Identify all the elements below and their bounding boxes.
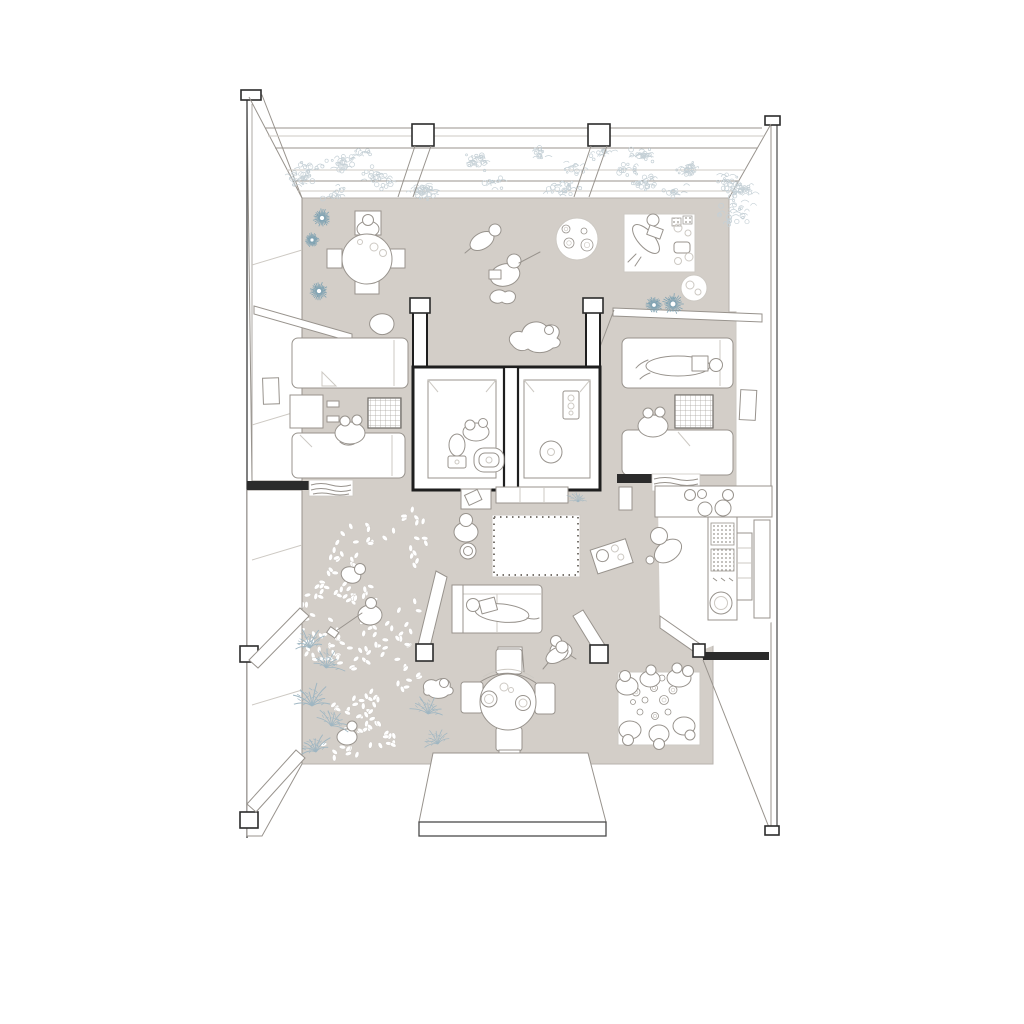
desk-item	[327, 416, 339, 422]
south-wall	[247, 481, 309, 490]
toy	[652, 713, 659, 720]
floor-plan-canvas	[0, 0, 1024, 1024]
bed	[622, 430, 733, 475]
mirror	[739, 390, 757, 421]
column-cap	[410, 298, 430, 313]
round-play-rug	[556, 218, 598, 260]
south-wall	[703, 652, 769, 660]
round-dining-table	[480, 674, 536, 730]
bench-cap	[590, 645, 608, 663]
reading-mat	[624, 214, 695, 272]
column-cap	[412, 124, 434, 146]
desk	[290, 395, 323, 428]
round-table	[342, 234, 392, 284]
fringed-rug	[492, 515, 580, 577]
wall-cap	[693, 644, 705, 657]
wall-cap	[241, 90, 261, 100]
basin	[474, 448, 504, 472]
chair	[496, 727, 522, 751]
floor-plan-drawing	[0, 0, 1024, 1024]
grass-ledge	[309, 480, 353, 496]
toy	[562, 225, 570, 233]
wall-cap	[765, 116, 780, 125]
shower-panel	[563, 391, 579, 419]
column-cap	[588, 124, 610, 146]
cat	[490, 290, 515, 304]
bench-cap	[416, 644, 433, 661]
cabinet-panel	[619, 487, 632, 510]
toy	[660, 696, 669, 705]
chair	[327, 249, 342, 268]
basket	[711, 523, 734, 545]
hatched-rug	[368, 398, 401, 428]
wall-art	[263, 378, 280, 405]
toy	[564, 238, 574, 248]
toy-corner	[616, 663, 700, 750]
toy	[631, 700, 636, 705]
chair	[535, 683, 555, 714]
column-cap	[240, 812, 258, 828]
toilet	[448, 434, 466, 468]
entry-platform	[419, 753, 606, 836]
shelf-unit	[737, 533, 752, 600]
toy	[581, 228, 587, 234]
fridge	[754, 520, 770, 618]
hatched-rug	[675, 395, 713, 428]
desk-item	[327, 401, 339, 407]
shower-drain	[540, 441, 562, 463]
bed	[292, 338, 408, 388]
counter	[655, 486, 772, 517]
chair	[461, 682, 483, 713]
south-wall	[617, 474, 653, 483]
column-cap	[583, 298, 603, 313]
toy	[665, 709, 671, 715]
toy	[642, 697, 648, 703]
sideboard	[496, 487, 568, 503]
basket	[711, 549, 734, 571]
toy	[637, 709, 643, 715]
wall-cap	[765, 826, 779, 835]
cat-stretching	[423, 679, 453, 699]
small-round-rug	[681, 275, 707, 301]
toy	[581, 239, 593, 251]
